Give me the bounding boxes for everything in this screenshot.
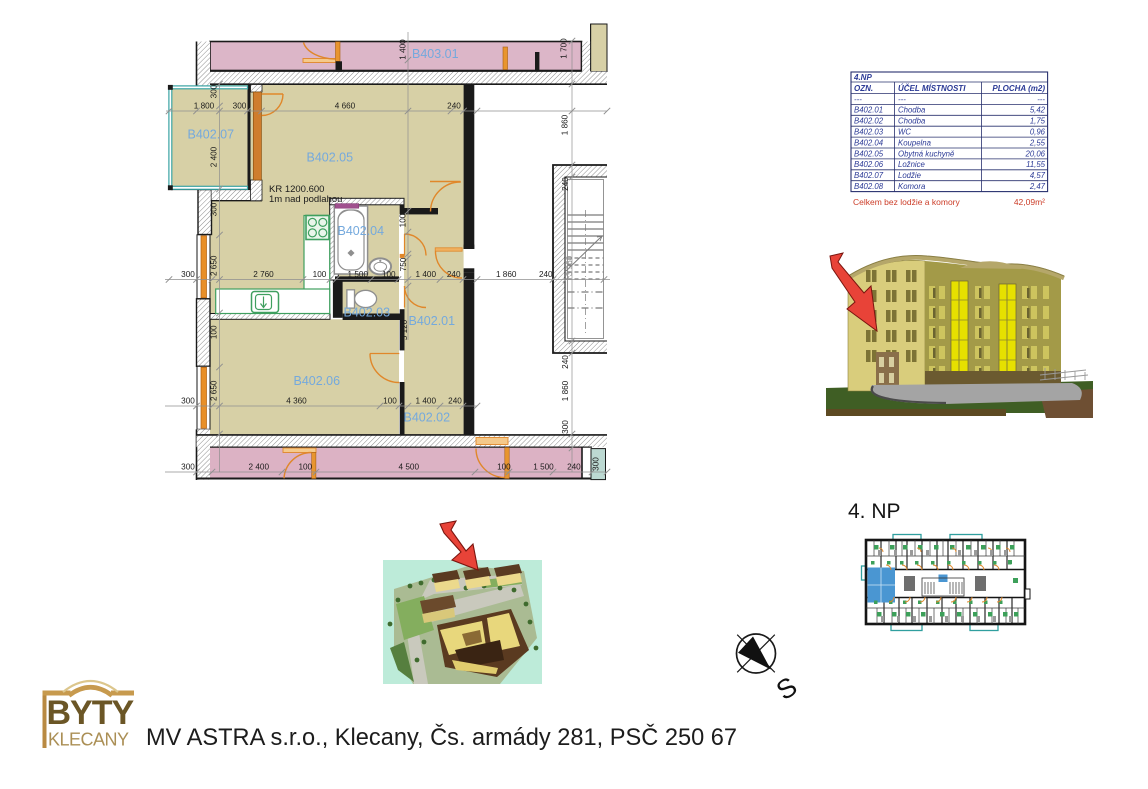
svg-text:300: 300	[181, 270, 195, 279]
svg-text:Komora: Komora	[898, 182, 926, 191]
svg-text:4 500: 4 500	[399, 463, 420, 472]
svg-text:1 860: 1 860	[561, 380, 570, 401]
svg-text:4. NP: 4. NP	[848, 500, 901, 523]
svg-text:B402.05: B402.05	[307, 151, 354, 165]
svg-text:300: 300	[210, 84, 219, 98]
svg-text:300: 300	[233, 102, 247, 111]
svg-text:2 650: 2 650	[210, 380, 219, 401]
svg-text:2,55: 2,55	[1029, 138, 1046, 147]
svg-text:240: 240	[447, 102, 461, 111]
svg-text:750: 750	[399, 257, 408, 271]
svg-text:B402.01: B402.01	[854, 106, 883, 115]
svg-text:42,09m²: 42,09m²	[1014, 197, 1045, 207]
svg-text:B402.07: B402.07	[854, 171, 884, 180]
svg-text:4 660: 4 660	[335, 102, 356, 111]
svg-text:---: ---	[854, 95, 862, 104]
svg-text:Lodžie: Lodžie	[898, 171, 922, 180]
svg-text:240: 240	[567, 463, 581, 472]
svg-text:4 360: 4 360	[286, 397, 307, 406]
svg-text:100: 100	[298, 463, 312, 472]
svg-text:240: 240	[448, 397, 462, 406]
svg-text:2,47: 2,47	[1029, 182, 1046, 191]
svg-text:B402.05: B402.05	[854, 149, 884, 158]
svg-text:1 700: 1 700	[560, 38, 569, 59]
svg-text:B402.02: B402.02	[404, 411, 451, 425]
svg-text:BYTY: BYTY	[47, 694, 135, 732]
svg-text:0,96: 0,96	[1030, 128, 1046, 137]
svg-text:Celkem bez lodžie a komory: Celkem bez lodžie a komory	[853, 197, 961, 207]
svg-text:2 400: 2 400	[210, 146, 219, 167]
svg-text:300: 300	[561, 420, 570, 434]
svg-text:B402.02: B402.02	[854, 117, 884, 126]
svg-text:240: 240	[539, 270, 553, 279]
svg-text:ÚČEL MÍSTNOSTI: ÚČEL MÍSTNOSTI	[898, 84, 966, 93]
svg-text:1 400: 1 400	[416, 270, 437, 279]
svg-text:B402.08: B402.08	[854, 182, 884, 191]
svg-text:MV ASTRA s.r.o., Klecany, Čs.: MV ASTRA s.r.o., Klecany, Čs. armády 281…	[146, 723, 737, 751]
svg-text:1 800: 1 800	[194, 102, 215, 111]
svg-text:1 860: 1 860	[496, 270, 517, 279]
svg-text:B402.07: B402.07	[188, 128, 235, 142]
svg-text:Ložnice: Ložnice	[898, 160, 926, 169]
svg-text:2 400: 2 400	[249, 463, 270, 472]
svg-text:100: 100	[399, 213, 408, 227]
svg-text:1 860: 1 860	[561, 114, 570, 135]
svg-text:11,55: 11,55	[1026, 160, 1046, 169]
svg-text:100: 100	[497, 463, 511, 472]
svg-text:300: 300	[210, 202, 219, 216]
svg-text:B402.03: B402.03	[344, 306, 391, 320]
svg-text:Obytná kuchyně: Obytná kuchyně	[898, 149, 955, 158]
svg-text:300: 300	[181, 463, 195, 472]
svg-text:300: 300	[181, 397, 195, 406]
svg-text:---: ---	[1037, 95, 1045, 104]
svg-text:2 760: 2 760	[253, 270, 274, 279]
svg-text:4.NP: 4.NP	[853, 73, 872, 82]
svg-text:240: 240	[447, 270, 461, 279]
svg-text:Chodba: Chodba	[898, 117, 926, 126]
svg-text:100: 100	[382, 270, 396, 279]
svg-text:1 400: 1 400	[399, 39, 408, 60]
svg-text:B402.04: B402.04	[854, 138, 884, 147]
svg-text:B402.03: B402.03	[854, 128, 884, 137]
svg-text:1 400: 1 400	[416, 397, 437, 406]
svg-text:240: 240	[561, 355, 570, 369]
svg-text:KLECANY: KLECANY	[48, 730, 129, 750]
svg-text:B402.06: B402.06	[294, 374, 341, 388]
svg-text:---: ---	[898, 95, 906, 104]
svg-text:Chodba: Chodba	[898, 106, 926, 115]
svg-text:5,42: 5,42	[1030, 106, 1046, 115]
svg-text:1 500: 1 500	[348, 270, 369, 279]
svg-text:1m nad podlahou: 1m nad podlahou	[269, 194, 342, 205]
svg-text:4,57: 4,57	[1030, 171, 1046, 180]
svg-text:100: 100	[383, 397, 397, 406]
svg-text:B403.01: B403.01	[412, 47, 459, 61]
svg-text:B402.01: B402.01	[409, 314, 456, 328]
svg-text:240: 240	[561, 177, 570, 191]
svg-text:OZN.: OZN.	[854, 84, 873, 93]
svg-text:100: 100	[210, 325, 219, 339]
svg-text:B402.04: B402.04	[338, 224, 385, 238]
svg-text:B402.06: B402.06	[854, 160, 884, 169]
svg-text:Koupelna: Koupelna	[898, 138, 932, 147]
svg-text:2 650: 2 650	[210, 255, 219, 276]
svg-text:3 960: 3 960	[565, 255, 574, 276]
svg-text:300: 300	[592, 457, 601, 471]
svg-text:PLOCHA (m2): PLOCHA (m2)	[992, 84, 1045, 93]
svg-text:WC: WC	[898, 128, 911, 137]
svg-text:1 500: 1 500	[533, 463, 554, 472]
svg-text:20,06: 20,06	[1024, 149, 1045, 158]
svg-text:1,75: 1,75	[1030, 117, 1046, 126]
svg-text:100: 100	[313, 270, 327, 279]
